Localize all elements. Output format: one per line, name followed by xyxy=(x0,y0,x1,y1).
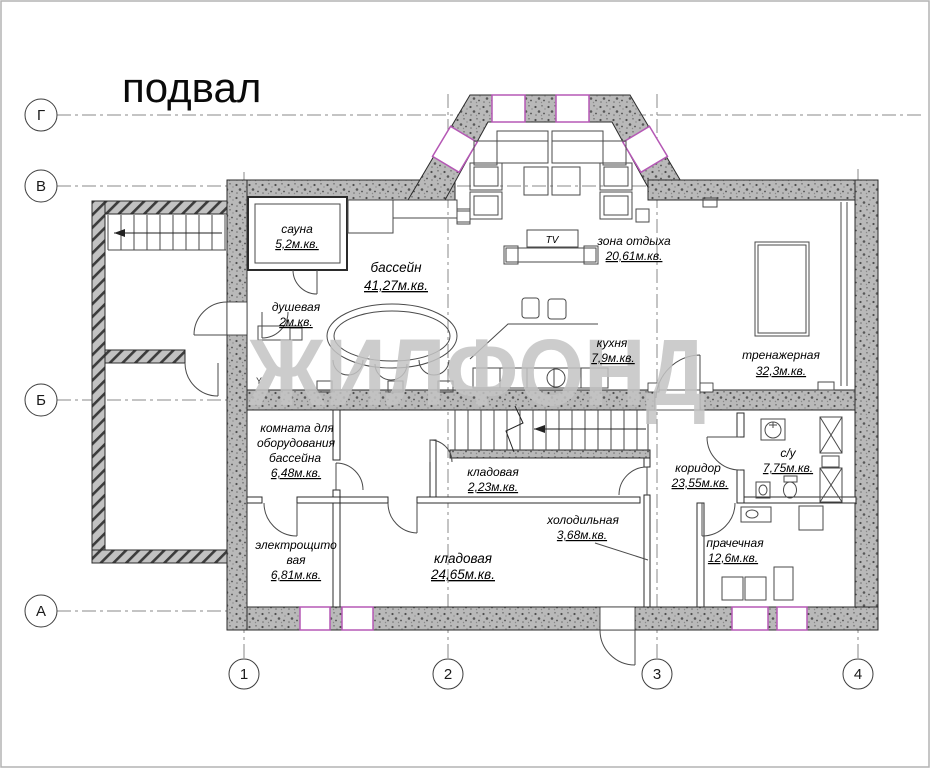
svg-text:комната для: комната для xyxy=(260,421,334,435)
svg-text:23,55м.кв.: 23,55м.кв. xyxy=(671,476,729,490)
label-sauna: сауна 5,2м.кв. xyxy=(275,222,319,251)
axis-label-g: Г xyxy=(37,107,45,124)
svg-text:прачечная: прачечная xyxy=(706,536,764,550)
svg-text:бассейн: бассейн xyxy=(370,260,422,275)
page-title: подвал xyxy=(122,64,261,111)
svg-text:с/у: с/у xyxy=(780,446,796,460)
svg-text:тренажерная: тренажерная xyxy=(742,348,820,362)
svg-text:5,2м.кв.: 5,2м.кв. xyxy=(275,237,319,251)
top-wall-right xyxy=(648,180,878,200)
floor-plan-drawing: Г В Б А 1 2 3 4 xyxy=(0,0,930,768)
electrical-wall-a xyxy=(247,497,262,503)
bathroom-wall-a xyxy=(737,413,744,437)
svg-text:6,81м.кв.: 6,81м.кв. xyxy=(271,568,321,582)
svg-text:холодильная: холодильная xyxy=(546,513,619,527)
label-lounge: зона отдыха 20,61м.кв. xyxy=(596,234,671,263)
svg-text:2,23м.кв.: 2,23м.кв. xyxy=(467,480,518,494)
axis-label-4: 4 xyxy=(854,666,862,683)
axis-label-b: Б xyxy=(36,392,46,409)
label-laundry: прачечная 12,6м.кв. xyxy=(706,536,764,565)
corridor-bottom-wall-a xyxy=(340,497,388,503)
bay-window-1 xyxy=(492,95,525,122)
tv-label: TV xyxy=(546,235,560,246)
svg-text:кладовая: кладовая xyxy=(434,551,492,566)
middle-wall-right xyxy=(700,390,855,410)
svg-text:24,65м.кв.: 24,65м.кв. xyxy=(430,567,495,582)
corridor-bottom-wall-b xyxy=(417,497,640,503)
axis-label-2: 2 xyxy=(444,666,452,683)
svg-text:душевая: душевая xyxy=(272,300,321,314)
svg-text:6,48м.кв.: 6,48м.кв. xyxy=(271,466,321,480)
svg-text:вая: вая xyxy=(286,553,306,567)
bathroom-wall-b xyxy=(737,470,744,503)
label-corridor: коридор 23,55м.кв. xyxy=(671,461,729,490)
electrical-storage-wall xyxy=(333,503,340,607)
svg-text:7,9м.кв.: 7,9м.кв. xyxy=(591,351,635,365)
basement-window-2 xyxy=(342,607,373,630)
laundry-wall xyxy=(697,503,704,607)
exit-door-opening xyxy=(600,607,635,630)
svg-text:коридор: коридор xyxy=(675,461,721,475)
svg-text:2м.кв.: 2м.кв. xyxy=(278,315,313,329)
svg-text:сауна: сауна xyxy=(281,222,313,236)
bay-window-2 xyxy=(556,95,589,122)
basement-window-3 xyxy=(732,607,768,630)
svg-text:кухня: кухня xyxy=(597,336,628,350)
axis-label-v: В xyxy=(36,178,46,195)
svg-text:41,27м.кв.: 41,27м.кв. xyxy=(364,278,428,293)
basement-window-4 xyxy=(777,607,807,630)
label-storage-small: кладовая 2,23м.кв. xyxy=(467,465,519,494)
axis-label-1: 1 xyxy=(240,666,248,683)
left-wall xyxy=(227,180,247,630)
annex-door-opening xyxy=(227,302,247,335)
svg-text:бассейна: бассейна xyxy=(269,451,321,465)
stair-side-wall xyxy=(450,450,650,458)
annex-bottom-wall xyxy=(92,550,231,563)
svg-text:электрощито: электрощито xyxy=(255,538,337,552)
small-storage-wall xyxy=(430,440,436,500)
svg-text:зона отдыха: зона отдыха xyxy=(596,234,671,248)
basement-window-1 xyxy=(300,607,330,630)
svg-text:32,3м.кв.: 32,3м.кв. xyxy=(756,364,806,378)
annex-top-wall xyxy=(92,201,230,214)
axis-label-3: 3 xyxy=(653,666,661,683)
cold-room-wall-b xyxy=(644,495,650,607)
svg-text:12,6м.кв.: 12,6м.кв. xyxy=(708,551,758,565)
watermark: ЖИЛФОНД xyxy=(247,320,706,426)
svg-text:7,75м.кв.: 7,75м.кв. xyxy=(763,461,813,475)
svg-text:оборудования: оборудования xyxy=(257,436,336,450)
annex-divider-wall xyxy=(105,350,185,363)
annex-left-wall xyxy=(92,201,105,563)
svg-text:3,68м.кв.: 3,68м.кв. xyxy=(557,528,607,542)
svg-text:20,61м.кв.: 20,61м.кв. xyxy=(605,249,663,263)
label-storage-large: кладовая 24,65м.кв. xyxy=(430,551,495,582)
svg-text:кладовая: кладовая xyxy=(467,465,519,479)
cold-room-wall-a xyxy=(644,458,650,467)
electrical-wall-b xyxy=(297,497,340,503)
right-wall xyxy=(855,180,878,630)
floor-plan-page: Г В Б А 1 2 3 4 xyxy=(0,0,930,768)
axis-label-a: А xyxy=(36,603,46,620)
